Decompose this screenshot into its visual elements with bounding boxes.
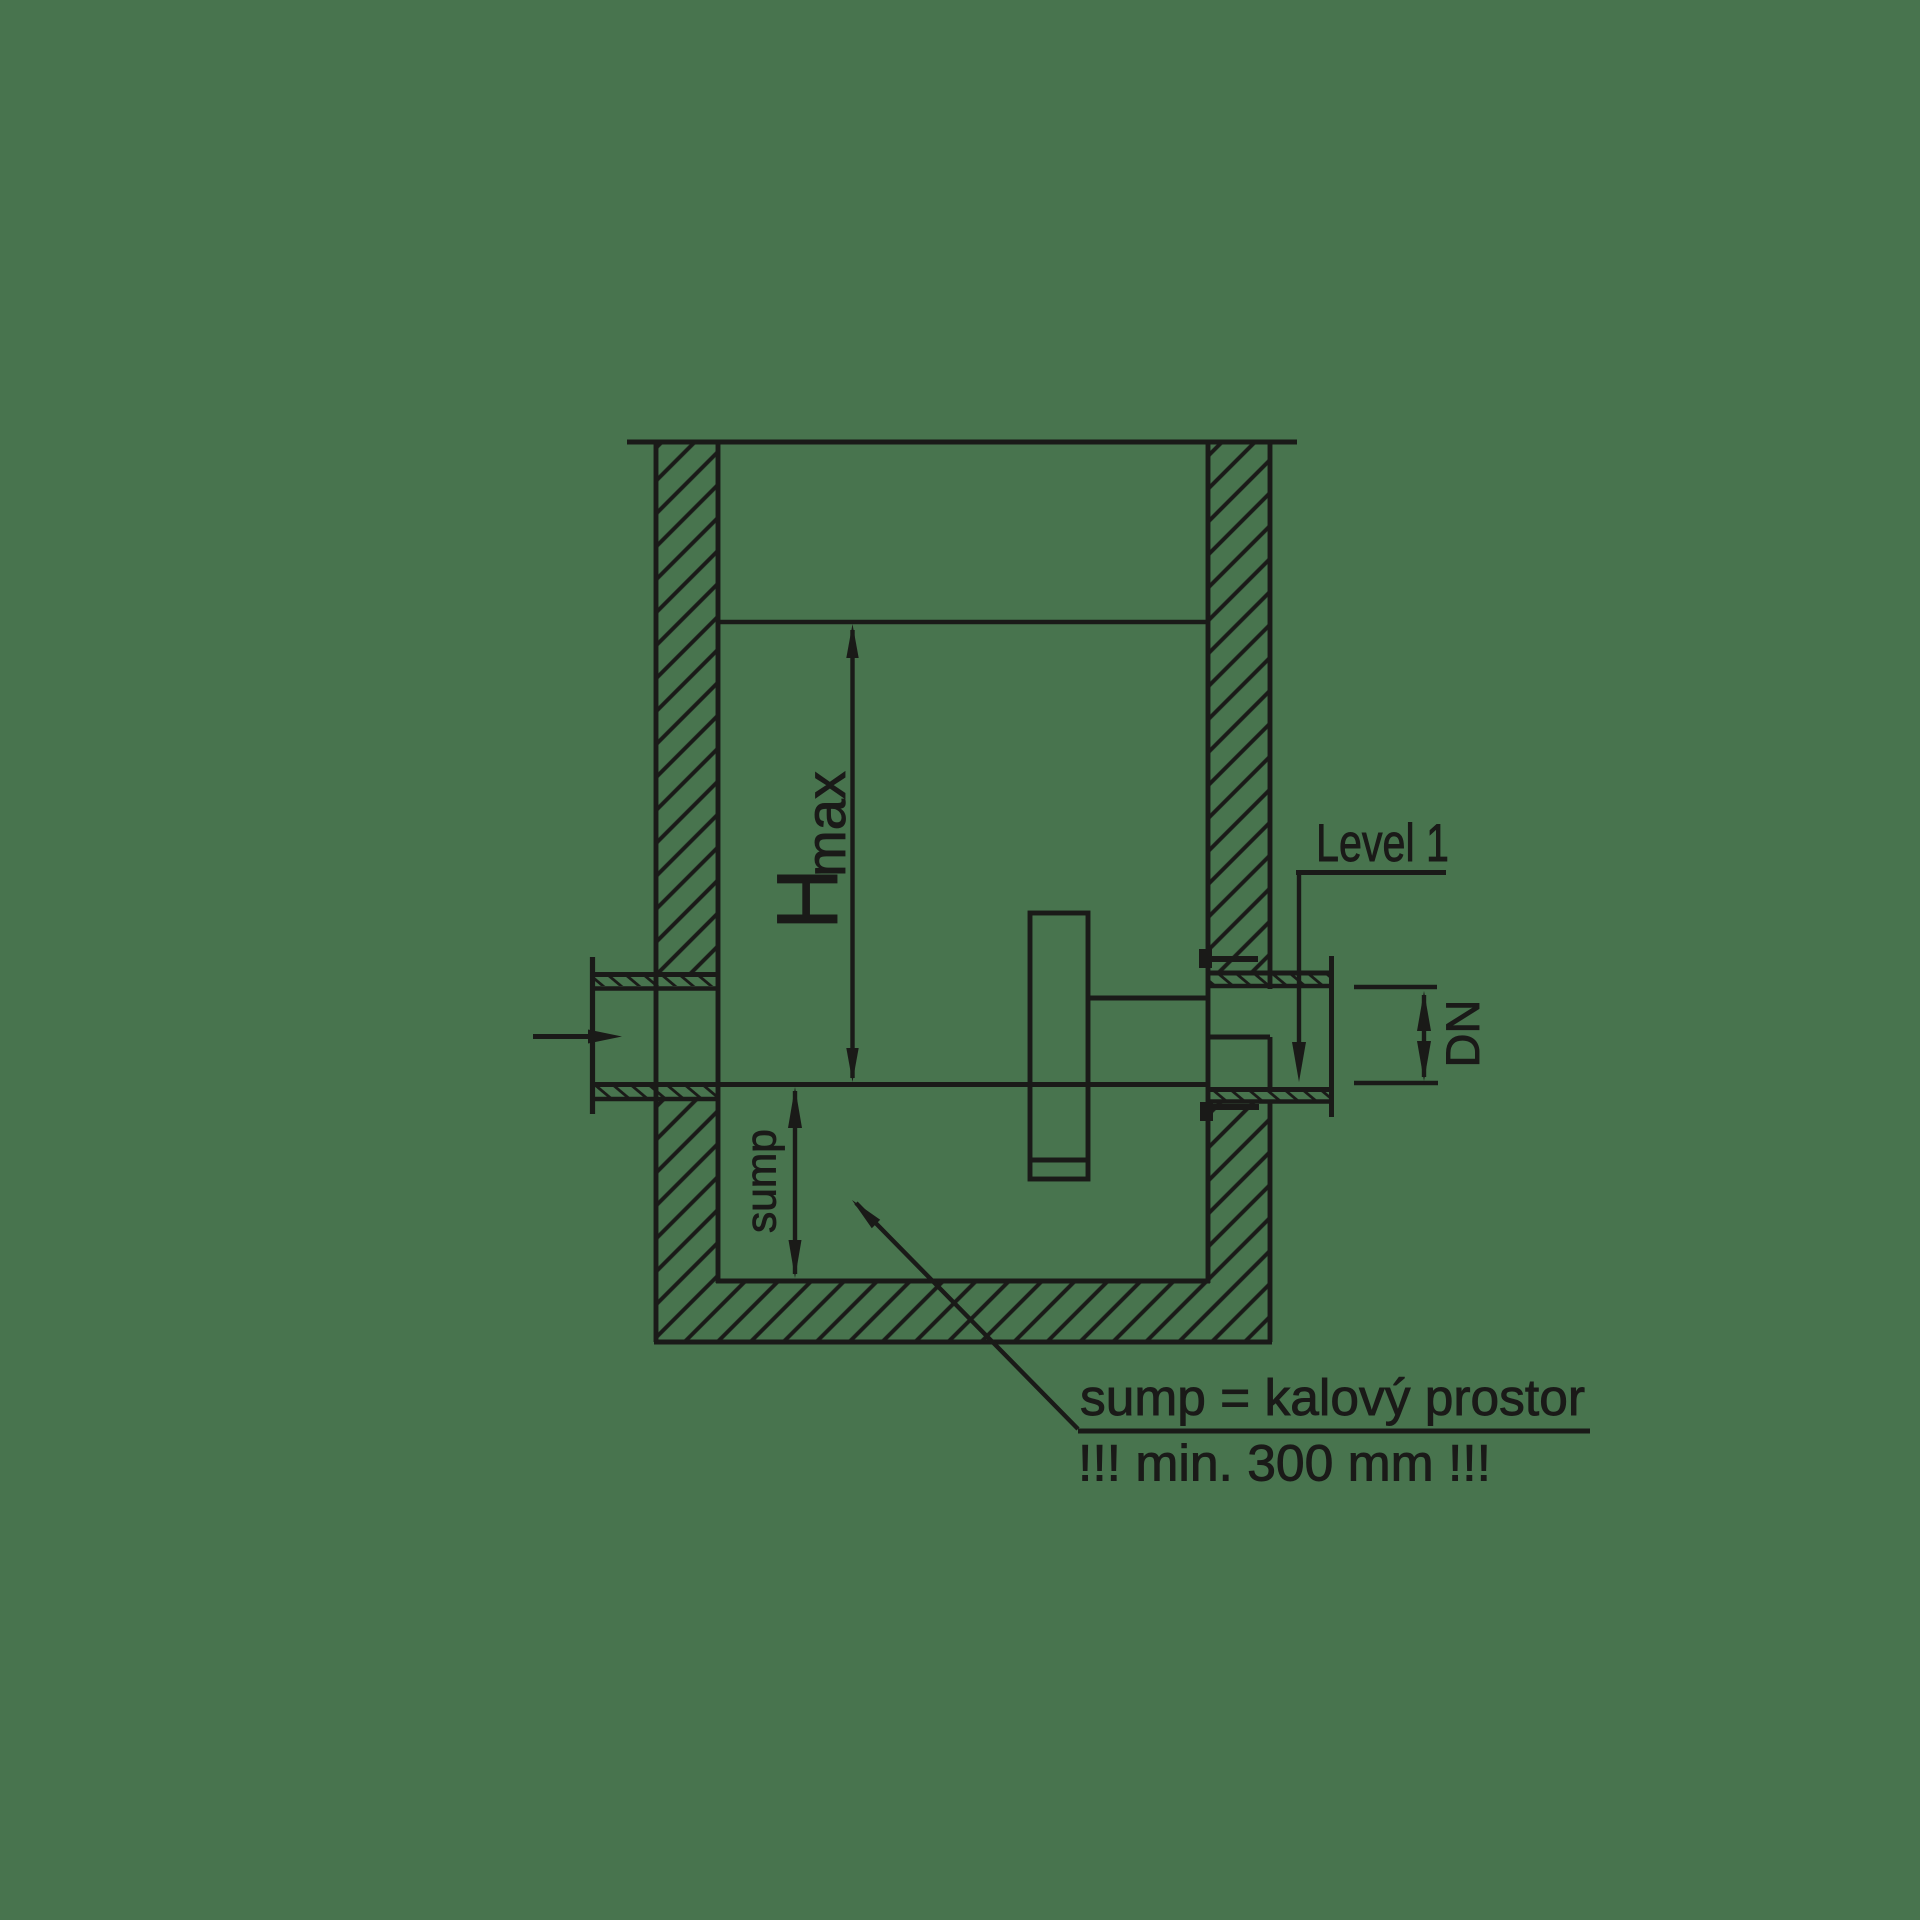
svg-text:sump: sump — [739, 1129, 786, 1233]
svg-text:DN: DN — [1436, 1000, 1489, 1068]
svg-text:sump = kalový prostor: sump = kalový prostor — [1080, 1369, 1585, 1426]
svg-text:!!! min. 300 mm !!!: !!! min. 300 mm !!! — [1078, 1435, 1491, 1492]
svg-text:Level 1: Level 1 — [1316, 814, 1449, 873]
